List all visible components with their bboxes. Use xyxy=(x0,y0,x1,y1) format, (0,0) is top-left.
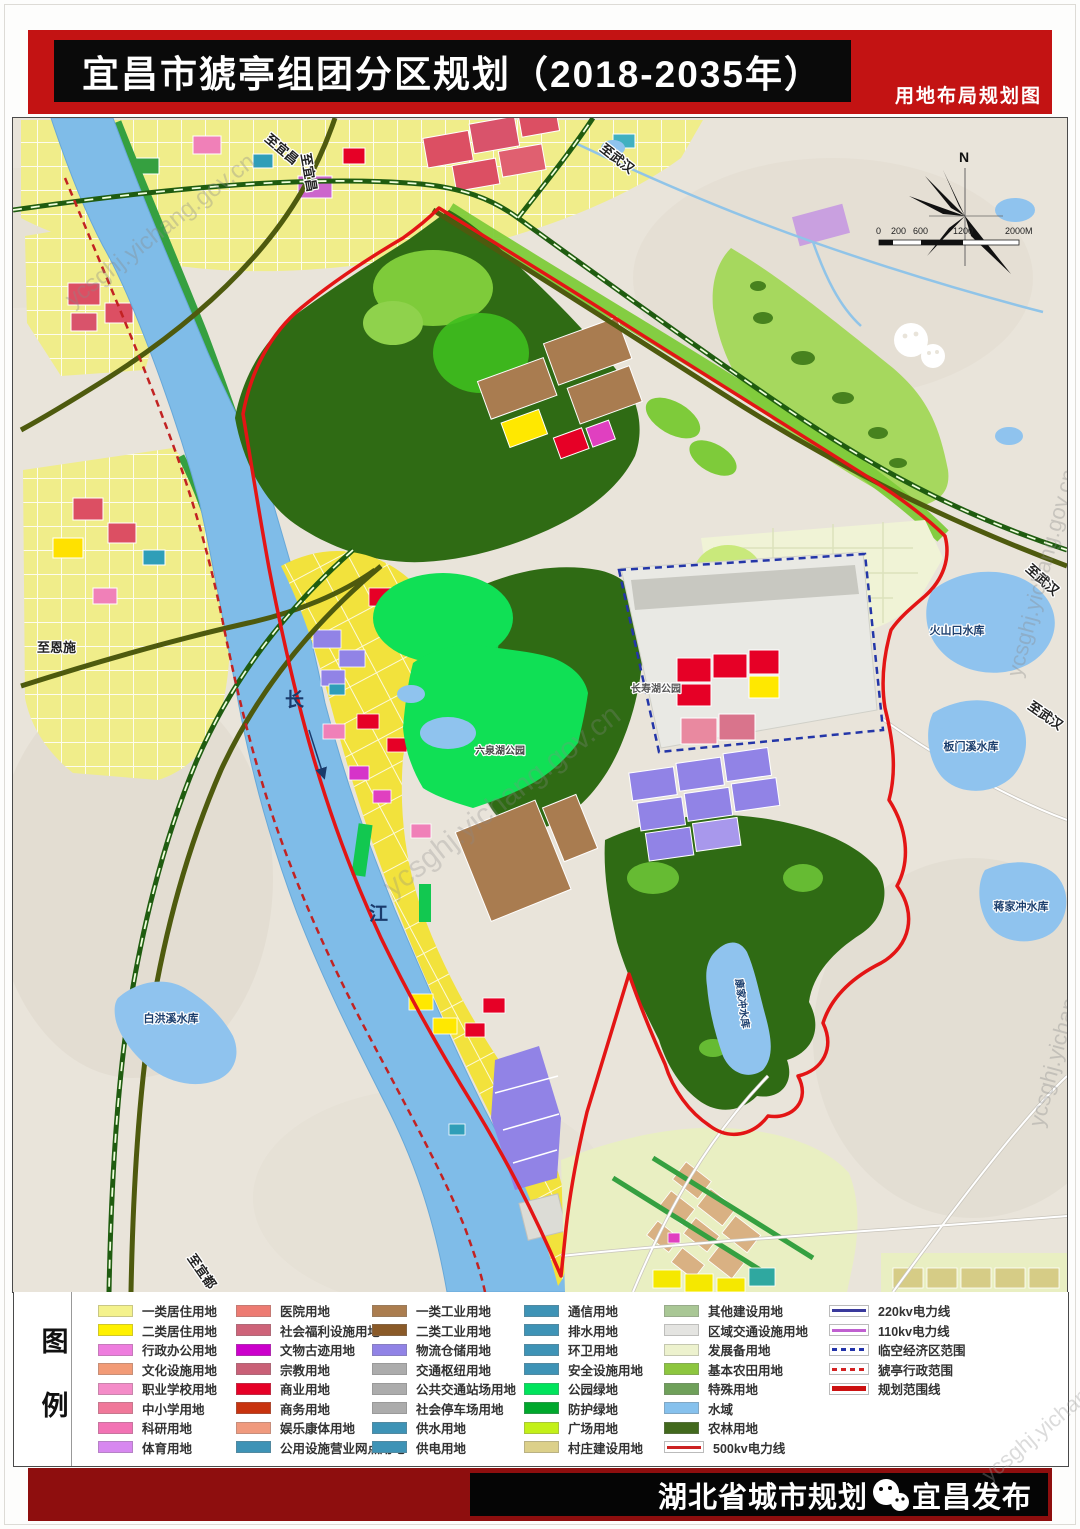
legend-swatch xyxy=(524,1363,559,1375)
wechat-icon xyxy=(870,1478,910,1512)
legend-item: 环卫用地 xyxy=(524,1340,643,1360)
legend-item: 广场用地 xyxy=(524,1418,643,1438)
legend-item: 公园绿地 xyxy=(524,1379,643,1399)
legend-item: 猇亭行政范围 xyxy=(829,1360,966,1380)
legend-swatch xyxy=(829,1344,869,1356)
legend-item: 通信用地 xyxy=(524,1301,643,1321)
label-baihongxi: 白洪溪水库 xyxy=(144,1011,199,1025)
label-changjiang-1: 长 xyxy=(285,689,305,711)
legend-item: 二类居住用地 xyxy=(98,1321,217,1341)
legend-item: 行政办公用地 xyxy=(98,1340,217,1360)
scale-tick-2000: 2000M xyxy=(1005,226,1033,236)
legend-column: 220kv电力线110kv电力线临空经济区范围猇亭行政范围规划范围线 xyxy=(829,1301,966,1399)
legend-item: 一类居住用地 xyxy=(98,1301,217,1321)
legend-swatch xyxy=(664,1344,699,1356)
legend-item-label: 安全设施用地 xyxy=(568,1360,643,1379)
legend-swatch xyxy=(664,1324,699,1336)
legend-swatch xyxy=(372,1324,407,1336)
legend-item: 物流仓储用地 xyxy=(372,1340,516,1360)
legend-item: 农林用地 xyxy=(664,1418,808,1438)
legend-item-label: 社会福利设施用地 xyxy=(280,1321,380,1340)
legend-item-label: 科研用地 xyxy=(142,1418,192,1437)
label-liuquanhu-park: 六泉湖公园 xyxy=(475,744,525,757)
legend-swatch xyxy=(236,1344,271,1356)
legend-item-label: 行政办公用地 xyxy=(142,1340,217,1359)
legend-item: 发展备用地 xyxy=(664,1340,808,1360)
legend-item-label: 二类工业用地 xyxy=(416,1321,491,1340)
legend-swatch xyxy=(372,1344,407,1356)
legend-swatch xyxy=(98,1363,133,1375)
legend-column: 其他建设用地区域交通设施用地发展备用地基本农田用地特殊用地水域农林用地500kv… xyxy=(664,1301,808,1457)
legend-swatch xyxy=(829,1305,869,1317)
legend-item-label: 宗教用地 xyxy=(280,1360,330,1379)
legend-item-label: 公园绿地 xyxy=(568,1379,618,1398)
legend-swatch xyxy=(829,1383,869,1395)
legend-swatch xyxy=(829,1363,869,1375)
legend-item: 二类工业用地 xyxy=(372,1321,516,1341)
legend-item: 供电用地 xyxy=(372,1438,516,1458)
legend-swatch xyxy=(372,1422,407,1434)
legend-item: 文化设施用地 xyxy=(98,1360,217,1380)
legend-item-label: 村庄建设用地 xyxy=(568,1438,643,1457)
legend-panel: 图 例 一类居住用地二类居住用地行政办公用地文化设施用地职业学校用地中小学用地科… xyxy=(13,1292,1069,1467)
legend-item-label: 体育用地 xyxy=(142,1438,192,1457)
legend-item-label: 物流仓储用地 xyxy=(416,1340,491,1359)
legend-item-label: 商务用地 xyxy=(280,1399,330,1418)
legend-swatch xyxy=(524,1422,559,1434)
page-title: 宜昌市猇亭组团分区规划（2018-2035年） xyxy=(82,44,823,98)
legend-item-label: 区域交通设施用地 xyxy=(708,1321,808,1340)
legend-swatch xyxy=(524,1344,559,1356)
legend-item: 社会停车场用地 xyxy=(372,1399,516,1419)
north-label: N xyxy=(959,149,969,165)
scale-tick-0: 0 xyxy=(876,226,881,236)
legend-item-label: 文物古迹用地 xyxy=(280,1340,355,1359)
scale-tick-1200: 1200 xyxy=(953,226,973,236)
scale-tick-200: 200 xyxy=(891,226,906,236)
legend-swatch xyxy=(372,1305,407,1317)
legend-item-label: 广场用地 xyxy=(568,1418,618,1437)
legend-swatch xyxy=(524,1324,559,1336)
footer-band: 湖北省城市规划 宜昌发布 xyxy=(28,1468,1052,1521)
legend-item: 区域交通设施用地 xyxy=(664,1321,808,1341)
legend-item-label: 通信用地 xyxy=(568,1301,618,1320)
legend-title-char-1: 图 xyxy=(40,1320,70,1359)
legend-item: 基本农田用地 xyxy=(664,1360,808,1380)
legend-item-label: 特殊用地 xyxy=(708,1379,758,1398)
legend-item-label: 交通枢纽用地 xyxy=(416,1360,491,1379)
legend-swatch xyxy=(664,1363,699,1375)
legend-item: 科研用地 xyxy=(98,1418,217,1438)
label-jiangjiachong: 蒋家冲水库 xyxy=(994,899,1049,913)
legend-item-label: 防护绿地 xyxy=(568,1399,618,1418)
legend-item: 规划范围线 xyxy=(829,1379,966,1399)
footer-box: 湖北省城市规划 宜昌发布 xyxy=(470,1473,1048,1516)
legend-item-label: 发展备用地 xyxy=(708,1340,771,1359)
legend-swatch xyxy=(664,1441,704,1453)
legend-item: 临空经济区范围 xyxy=(829,1340,966,1360)
legend-item-label: 基本农田用地 xyxy=(708,1360,783,1379)
legend-item: 体育用地 xyxy=(98,1438,217,1458)
legend-swatch xyxy=(236,1441,271,1453)
legend-swatch xyxy=(236,1422,271,1434)
planning-map: 至宜昌 至宜昌 至武汉 至武汉 至武汉 至恩施 至宜都 长 江 火山口水库 板门… xyxy=(13,118,1067,1292)
legend-item-label: 猇亭行政范围 xyxy=(878,1360,953,1379)
legend-swatch xyxy=(98,1441,133,1453)
legend-swatch xyxy=(98,1383,133,1395)
legend-item: 防护绿地 xyxy=(524,1399,643,1419)
legend-item-label: 商业用地 xyxy=(280,1379,330,1398)
legend-item-label: 110kv电力线 xyxy=(878,1321,950,1340)
poster-page: 宜昌市猇亭组团分区规划（2018-2035年） 用地布局规划图 xyxy=(0,0,1080,1529)
legend-item-label: 职业学校用地 xyxy=(142,1379,217,1398)
legend-item: 村庄建设用地 xyxy=(524,1438,643,1458)
legend-item: 其他建设用地 xyxy=(664,1301,808,1321)
legend-swatch xyxy=(372,1383,407,1395)
legend-column: 一类居住用地二类居住用地行政办公用地文化设施用地职业学校用地中小学用地科研用地体… xyxy=(98,1301,217,1457)
legend-swatch xyxy=(664,1383,699,1395)
legend-swatch xyxy=(664,1422,699,1434)
legend-swatch xyxy=(236,1363,271,1375)
label-changshouhu-park: 长寿湖公园 xyxy=(631,682,681,695)
legend-swatch xyxy=(524,1383,559,1395)
header-band: 宜昌市猇亭组团分区规划（2018-2035年） 用地布局规划图 xyxy=(28,30,1052,114)
legend-item-label: 娱乐康体用地 xyxy=(280,1418,355,1437)
legend-item-label: 二类居住用地 xyxy=(142,1321,217,1340)
legend-swatch xyxy=(236,1324,271,1336)
legend-item: 排水用地 xyxy=(524,1321,643,1341)
legend-swatch xyxy=(664,1305,699,1317)
legend-item-label: 其他建设用地 xyxy=(708,1301,783,1320)
scale-tick-600: 600 xyxy=(913,226,928,236)
legend-item-label: 农林用地 xyxy=(708,1418,758,1437)
legend-item: 供水用地 xyxy=(372,1418,516,1438)
legend-column: 一类工业用地二类工业用地物流仓储用地交通枢纽用地公共交通站场用地社会停车场用地供… xyxy=(372,1301,516,1457)
legend-item-label: 环卫用地 xyxy=(568,1340,618,1359)
legend-item-label: 规划范围线 xyxy=(878,1379,941,1398)
map-subtitle: 用地布局规划图 xyxy=(895,81,1042,108)
legend-swatch xyxy=(524,1402,559,1414)
legend-item-label: 医院用地 xyxy=(280,1301,330,1320)
legend-item-label: 一类工业用地 xyxy=(416,1301,491,1320)
legend-swatch xyxy=(98,1324,133,1336)
legend-swatch xyxy=(372,1441,407,1453)
legend-item-label: 中小学用地 xyxy=(142,1399,205,1418)
legend-item: 水域 xyxy=(664,1399,808,1419)
legend-swatch xyxy=(98,1344,133,1356)
legend-swatch xyxy=(372,1363,407,1375)
legend-item: 500kv电力线 xyxy=(664,1438,808,1458)
legend-divider xyxy=(71,1292,72,1466)
footer-institute: 湖北省城市规划 xyxy=(658,1474,868,1516)
label-changjiang-2: 江 xyxy=(369,903,388,925)
legend-item: 安全设施用地 xyxy=(524,1360,643,1380)
legend-item-label: 供电用地 xyxy=(416,1438,466,1457)
legend-item: 交通枢纽用地 xyxy=(372,1360,516,1380)
legend-swatch xyxy=(524,1441,559,1453)
legend-swatch xyxy=(236,1305,271,1317)
legend-item: 一类工业用地 xyxy=(372,1301,516,1321)
legend-item: 公共交通站场用地 xyxy=(372,1379,516,1399)
label-huoshankou: 火山口水库 xyxy=(930,623,985,637)
legend-swatch xyxy=(98,1402,133,1414)
footer-publisher: 宜昌发布 xyxy=(912,1474,1032,1516)
legend-swatch xyxy=(98,1422,133,1434)
legend-swatch xyxy=(236,1383,271,1395)
legend-item-label: 社会停车场用地 xyxy=(416,1399,504,1418)
label-to-enshi: 至恩施 xyxy=(37,640,76,655)
legend-item-label: 一类居住用地 xyxy=(142,1301,217,1320)
scale-bar: 0 200 600 1200 2000M xyxy=(876,226,1033,245)
legend-item-label: 文化设施用地 xyxy=(142,1360,217,1379)
map-area: 至宜昌 至宜昌 至武汉 至武汉 至武汉 至恩施 至宜都 长 江 火山口水库 板门… xyxy=(13,118,1067,1292)
legend-item: 中小学用地 xyxy=(98,1399,217,1419)
label-banmenxi: 板门溪水库 xyxy=(944,739,999,753)
legend-swatch xyxy=(372,1402,407,1414)
legend-swatch xyxy=(98,1305,133,1317)
legend-title-char-2: 例 xyxy=(40,1384,70,1423)
legend-item: 职业学校用地 xyxy=(98,1379,217,1399)
legend-item-label: 500kv电力线 xyxy=(713,1438,785,1457)
legend-item-label: 供水用地 xyxy=(416,1418,466,1437)
legend-item: 220kv电力线 xyxy=(829,1301,966,1321)
legend-swatch xyxy=(664,1402,699,1414)
legend-item: 110kv电力线 xyxy=(829,1321,966,1341)
legend-swatch xyxy=(524,1305,559,1317)
legend-item-label: 水域 xyxy=(708,1399,733,1418)
legend-item-label: 排水用地 xyxy=(568,1321,618,1340)
legend-column: 通信用地排水用地环卫用地安全设施用地公园绿地防护绿地广场用地村庄建设用地 xyxy=(524,1301,643,1457)
legend-swatch xyxy=(236,1402,271,1414)
title-box: 宜昌市猇亭组团分区规划（2018-2035年） xyxy=(54,40,851,102)
legend-item-label: 公共交通站场用地 xyxy=(416,1379,516,1398)
legend-swatch xyxy=(829,1324,869,1336)
legend-item-label: 临空经济区范围 xyxy=(878,1340,966,1359)
legend-item: 特殊用地 xyxy=(664,1379,808,1399)
legend-item-label: 220kv电力线 xyxy=(878,1301,950,1320)
